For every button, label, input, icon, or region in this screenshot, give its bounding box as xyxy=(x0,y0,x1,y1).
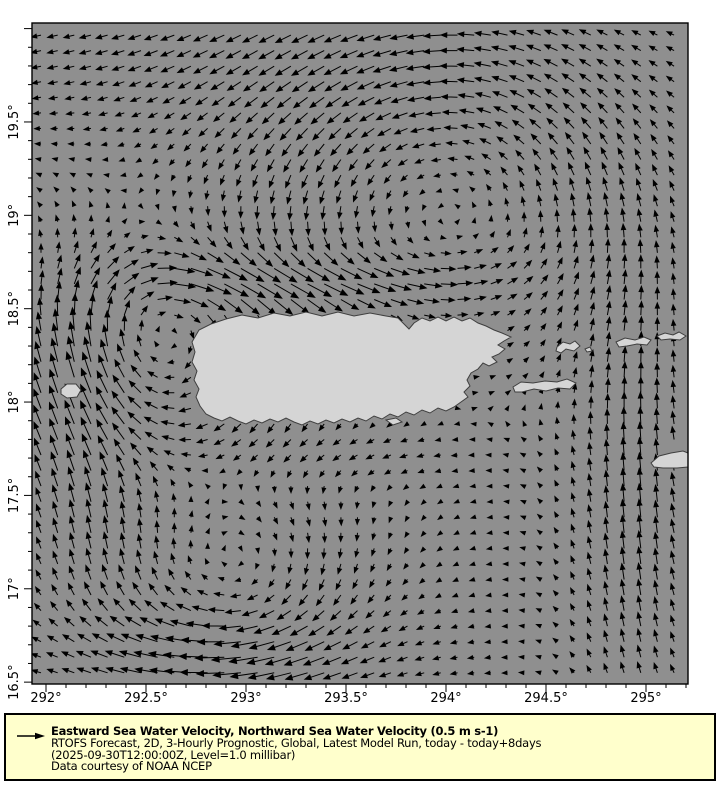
lat-tick-label: 18.5° xyxy=(7,291,22,326)
lon-tick-label: 292° xyxy=(30,691,61,706)
lon-tick-label: 293° xyxy=(230,691,261,706)
island-mona-island xyxy=(61,384,81,398)
lat-tick-label: 18° xyxy=(7,391,22,414)
lat-tick-label: 19° xyxy=(7,204,22,227)
lat-tick-label: 19.5° xyxy=(7,104,22,139)
velocity-vector-map: 292°292.5°293°293.5°294°294.5°295°19.5°1… xyxy=(0,0,720,800)
legend-credit: Data courtesy of NOAA NCEP xyxy=(51,761,706,773)
velocity-map-figure: 292°292.5°293°293.5°294°294.5°295°19.5°1… xyxy=(0,0,720,800)
lat-tick-label: 16.5° xyxy=(7,664,22,699)
lon-tick-label: 292.5° xyxy=(124,691,168,706)
legend-box: Eastward Sea Water Velocity, Northward S… xyxy=(4,713,716,781)
lon-tick-label: 294° xyxy=(430,691,461,706)
lon-tick-label: 295° xyxy=(630,691,661,706)
lon-tick-label: 293.5° xyxy=(324,691,368,706)
legend-text-block: Eastward Sea Water Velocity, Northward S… xyxy=(51,726,706,773)
lon-tick-label: 294.5° xyxy=(524,691,568,706)
reference-arrow-icon xyxy=(16,731,46,741)
lat-tick-label: 17.5° xyxy=(7,478,22,513)
lat-tick-label: 17° xyxy=(7,577,22,600)
